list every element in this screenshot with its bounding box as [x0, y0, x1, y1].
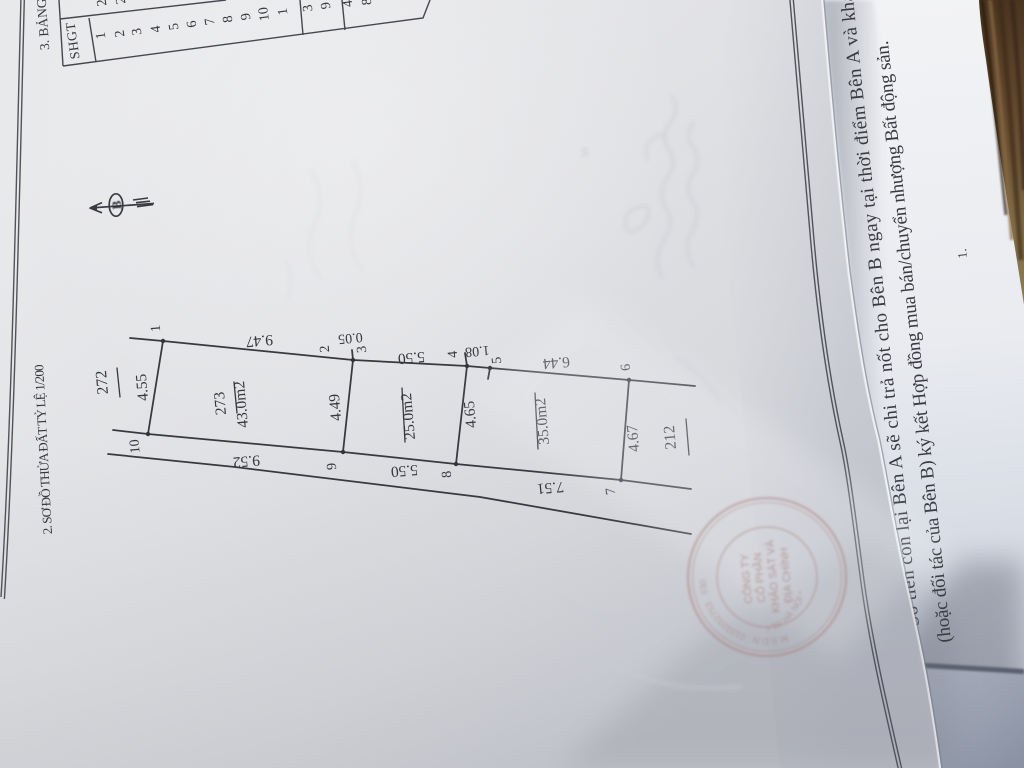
svg-text:4: 4: [341, 0, 357, 8]
svg-text:2: 2: [318, 345, 334, 353]
svg-text:3: 3: [355, 345, 371, 353]
svg-text:4.49: 4.49: [326, 393, 345, 422]
svg-text:1.08: 1.08: [464, 342, 490, 359]
svg-text:7.51: 7.51: [536, 478, 565, 497]
svg-text:2: 2: [95, 0, 111, 7]
svg-text:30: 30: [579, 146, 592, 159]
svg-text:B: B: [109, 200, 125, 210]
svg-text:272: 272: [93, 370, 112, 395]
svg-text:5.50: 5.50: [397, 348, 426, 367]
svg-text:9: 9: [325, 462, 341, 470]
svg-text:4.55: 4.55: [133, 373, 152, 402]
svg-text:1: 1: [149, 324, 165, 332]
svg-text:5.50: 5.50: [390, 461, 419, 480]
svg-text:1.: 1.: [954, 248, 970, 259]
svg-text:8: 8: [440, 470, 456, 478]
svg-text:273: 273: [211, 391, 230, 416]
svg-text:10: 10: [127, 439, 143, 454]
svg-text:8: 8: [360, 0, 376, 6]
svg-text:0.05: 0.05: [337, 329, 363, 346]
svg-text:5: 5: [490, 356, 506, 364]
svg-text:9.47: 9.47: [245, 331, 274, 350]
svg-text:10: 10: [256, 6, 273, 22]
svg-text:4: 4: [446, 350, 462, 358]
svg-text:9.52: 9.52: [232, 451, 261, 470]
